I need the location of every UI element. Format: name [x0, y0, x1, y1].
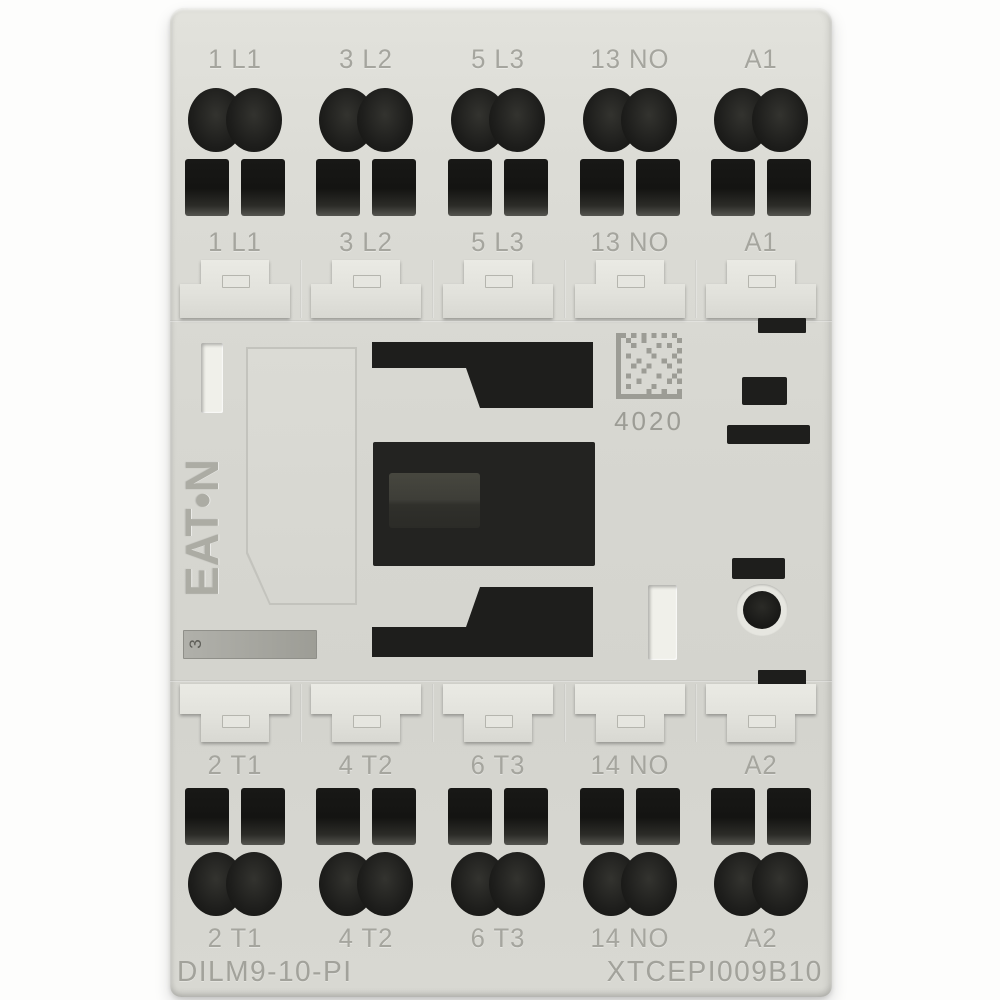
clamp-spring-notch — [353, 275, 381, 288]
clamp-tab — [443, 684, 553, 742]
clamp-tab — [311, 684, 421, 742]
terminal-label: A1 — [699, 227, 823, 257]
clamp-spring-notch — [353, 715, 381, 728]
wire-hole-pair — [583, 88, 677, 152]
terminal-label: 2 T1 — [173, 750, 297, 780]
clamp-tab — [575, 260, 685, 318]
clamp-spring-notch — [617, 715, 645, 728]
contact-carrier-opening — [372, 587, 593, 657]
contactor-body: 1 L1 3 L2 5 L3 13 NO A1 1 L1 3 L2 5 L3 1… — [170, 8, 832, 997]
terminal-label: 6 T3 — [436, 923, 560, 953]
terminal-divider — [564, 260, 566, 318]
release-opening — [711, 159, 755, 216]
contact-carrier-opening — [372, 342, 593, 408]
release-opening-pair — [185, 159, 285, 216]
release-opening — [448, 159, 492, 216]
release-opening-pair — [185, 788, 285, 845]
clamp-tab — [311, 260, 421, 318]
terminal-divider — [564, 684, 566, 742]
release-opening-pair — [316, 788, 416, 845]
release-opening — [316, 788, 360, 845]
release-opening-pair — [448, 788, 548, 845]
clamp-spring-notch — [222, 275, 250, 288]
terminal-label: A2 — [699, 750, 823, 780]
terminal-divider — [432, 684, 434, 742]
release-opening — [504, 159, 548, 216]
wire-hole-pair — [714, 88, 808, 152]
clamp-spring-notch — [485, 275, 513, 288]
wire-hole-pair — [451, 88, 545, 152]
catalog-number: XTCEPI009B10 — [607, 956, 823, 989]
release-opening — [241, 788, 285, 845]
release-opening — [580, 788, 624, 845]
vent-opening — [727, 425, 810, 444]
terminal-label: 5 L3 — [436, 227, 560, 257]
datamatrix-number: 4020 — [604, 406, 694, 437]
release-opening-pair — [711, 159, 811, 216]
vent-opening — [732, 558, 785, 579]
screwdriver-slot — [201, 343, 223, 413]
marking-strip: 3 — [183, 630, 317, 659]
release-opening — [372, 788, 416, 845]
clamp-tab — [443, 260, 553, 318]
terminal-label: 6 T3 — [436, 750, 560, 780]
wire-hole-pair — [714, 852, 808, 916]
round-opening — [743, 591, 781, 629]
release-opening — [636, 788, 680, 845]
photo-background: 1 L1 3 L2 5 L3 13 NO A1 1 L1 3 L2 5 L3 1… — [0, 0, 1000, 1000]
terminal-divider — [300, 260, 302, 318]
release-opening — [711, 788, 755, 845]
datamatrix-code — [616, 333, 682, 399]
wire-hole-pair — [188, 88, 282, 152]
clamp-spring-notch — [748, 715, 776, 728]
clamp-tab — [180, 260, 290, 318]
wire-hole-pair — [451, 852, 545, 916]
moving-contact — [389, 473, 480, 528]
terminal-label: 3 L2 — [304, 44, 428, 74]
terminal-label: 14 NO — [568, 750, 692, 780]
terminal-label: 2 T1 — [173, 923, 297, 953]
terminal-label: A1 — [699, 44, 823, 74]
clamp-tab — [180, 684, 290, 742]
terminal-label: 13 NO — [568, 44, 692, 74]
clamp-tab — [575, 684, 685, 742]
clamp-spring-notch — [617, 275, 645, 288]
terminal-label: 1 L1 — [173, 227, 297, 257]
terminal-label: 4 T2 — [304, 923, 428, 953]
clamp-tab — [706, 684, 816, 742]
release-opening-pair — [580, 159, 680, 216]
release-opening — [767, 159, 811, 216]
wire-hole-pair — [319, 88, 413, 152]
release-opening-pair — [316, 159, 416, 216]
clamp-spring-notch — [485, 715, 513, 728]
housing-groove — [170, 680, 832, 682]
housing-groove — [170, 320, 832, 322]
terminal-label: 3 L2 — [304, 227, 428, 257]
clamp-spring-notch — [748, 275, 776, 288]
release-opening — [185, 159, 229, 216]
release-opening-pair — [448, 159, 548, 216]
terminal-divider — [300, 684, 302, 742]
release-opening-pair — [580, 788, 680, 845]
release-opening — [767, 788, 811, 845]
release-opening — [316, 159, 360, 216]
wire-hole-pair — [188, 852, 282, 916]
screwdriver-slot — [648, 585, 677, 660]
clamp-tab — [706, 260, 816, 318]
terminal-divider — [432, 260, 434, 318]
clamp-spring-notch — [222, 715, 250, 728]
wire-hole-pair — [319, 852, 413, 916]
release-opening — [636, 159, 680, 216]
terminal-label: 13 NO — [568, 227, 692, 257]
black-marker-tab — [758, 318, 806, 333]
contact-carrier-window — [373, 442, 595, 566]
release-opening-pair — [711, 788, 811, 845]
wire-hole-pair — [583, 852, 677, 916]
release-opening — [372, 159, 416, 216]
eaton-logo: EAT•N — [178, 437, 226, 619]
release-opening — [504, 788, 548, 845]
terminal-label: 14 NO — [568, 923, 692, 953]
release-opening — [448, 788, 492, 845]
release-opening — [580, 159, 624, 216]
terminal-label: A2 — [699, 923, 823, 953]
release-opening — [185, 788, 229, 845]
release-opening — [241, 159, 285, 216]
terminal-label: 5 L3 — [436, 44, 560, 74]
marking-strip-number: 3 — [186, 634, 206, 654]
terminal-divider — [695, 260, 697, 318]
vent-opening — [742, 377, 787, 405]
terminal-divider — [695, 684, 697, 742]
terminal-label: 1 L1 — [173, 44, 297, 74]
model-number: DILM9-10-PI — [177, 956, 352, 989]
terminal-label: 4 T2 — [304, 750, 428, 780]
embossed-label-panel — [246, 347, 357, 605]
